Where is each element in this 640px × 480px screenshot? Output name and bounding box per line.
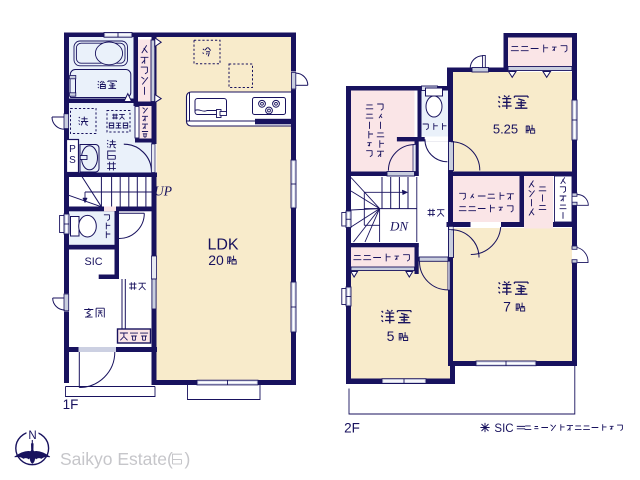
svg-text:S: S <box>69 155 76 166</box>
svg-text:Saikyo Estate(: Saikyo Estate( <box>60 449 173 469</box>
svg-text:P: P <box>69 144 76 155</box>
svg-text:): ) <box>185 449 191 469</box>
svg-text:1F: 1F <box>63 397 79 412</box>
svg-text:5.25: 5.25 <box>493 122 518 137</box>
svg-text:SIC: SIC <box>494 423 513 435</box>
svg-text:2F: 2F <box>344 421 360 436</box>
svg-text:DN: DN <box>389 219 409 234</box>
svg-text:UP: UP <box>154 184 172 199</box>
svg-text:LDK: LDK <box>207 237 238 254</box>
svg-text:5: 5 <box>387 328 395 344</box>
svg-text:20: 20 <box>208 252 224 268</box>
svg-text:7: 7 <box>503 299 511 315</box>
svg-text:SIC: SIC <box>85 256 103 268</box>
